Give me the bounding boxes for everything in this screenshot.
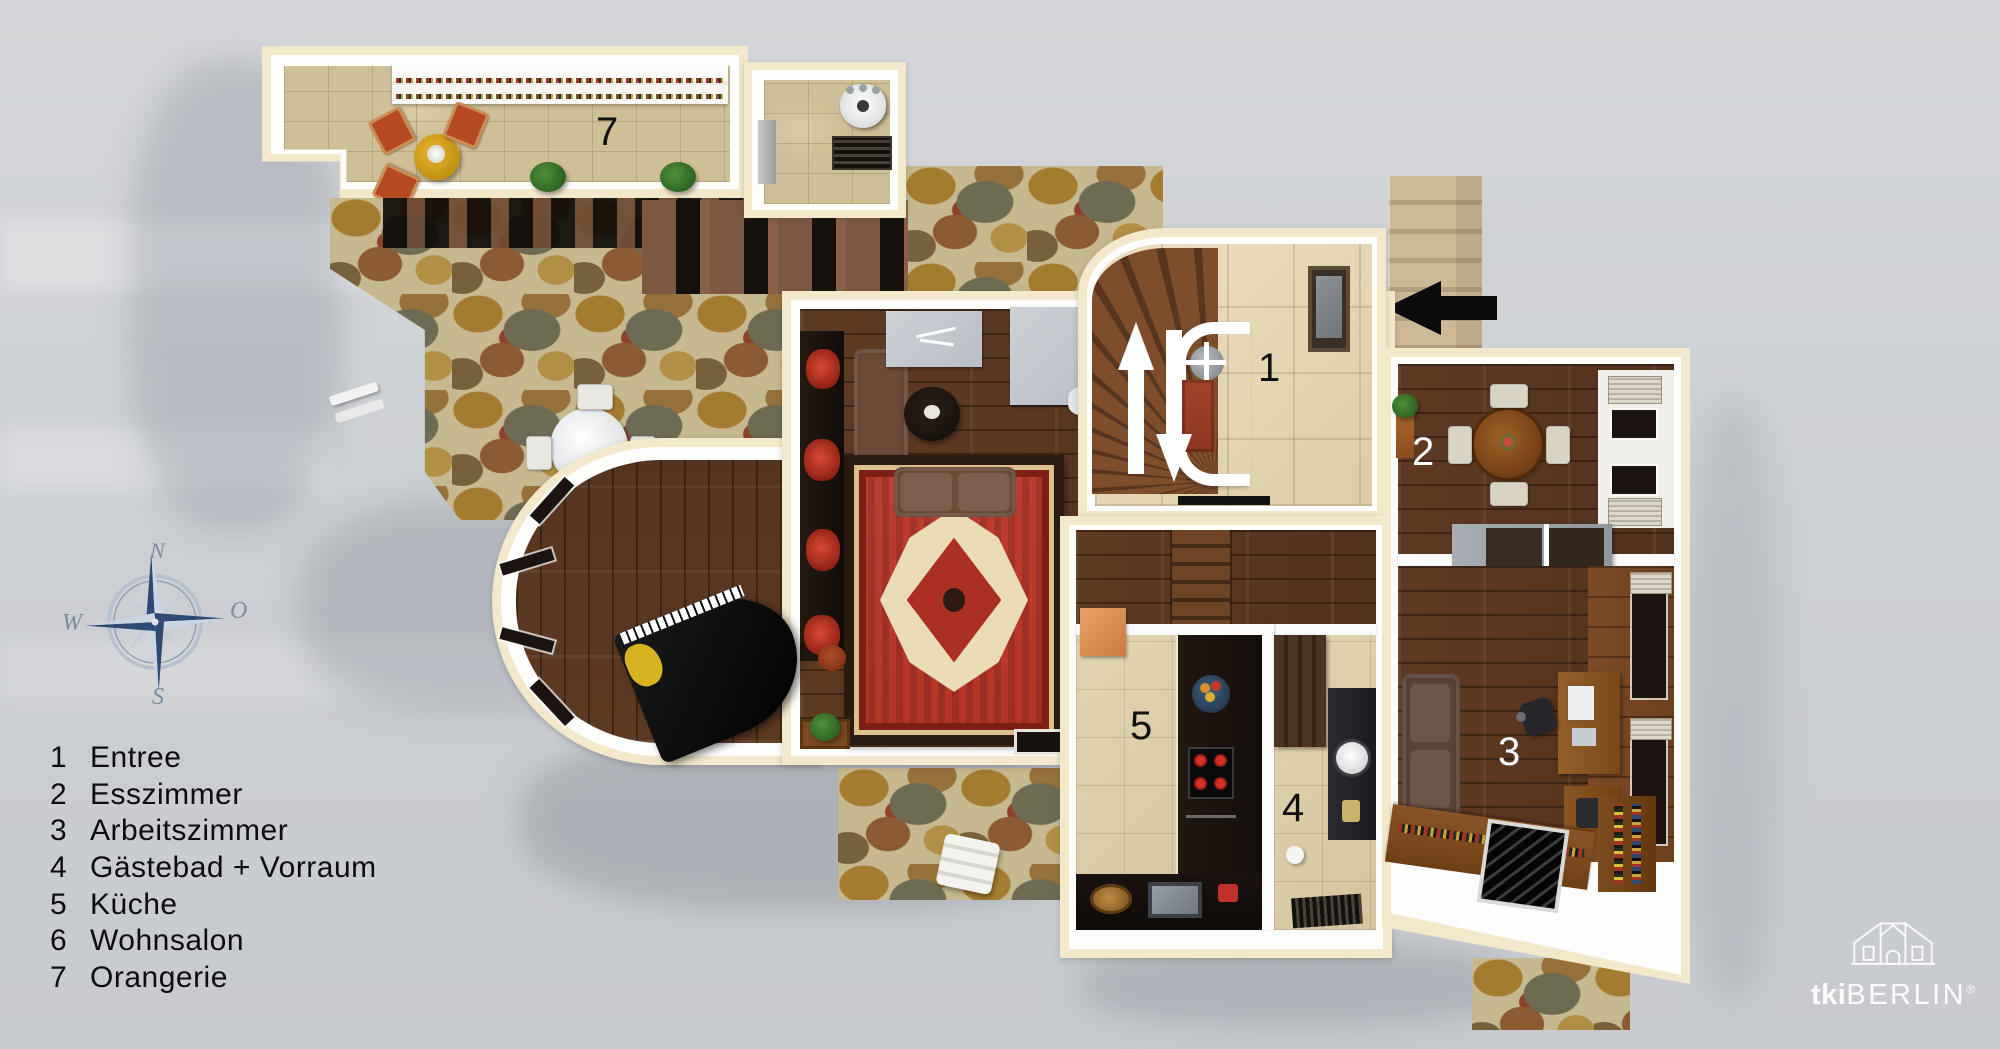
- desk: [1558, 672, 1620, 774]
- coffee-table: [904, 387, 960, 441]
- legend-label: Wohnsalon: [90, 924, 244, 958]
- legend-number: 6: [50, 924, 90, 958]
- registered-mark: ®: [1966, 982, 1975, 996]
- legend-number: 5: [50, 888, 90, 922]
- piano-stool: [818, 645, 846, 671]
- window-shutter: [1630, 718, 1672, 740]
- window-shutter: [1608, 498, 1662, 526]
- floor-grate: [834, 138, 890, 168]
- compass-west-label: W: [62, 610, 84, 636]
- legend-item: 4Gästebad + Vorraum: [50, 850, 377, 887]
- legend-item: 3Arbeitszimmer: [50, 813, 377, 850]
- brand-logo: tkiBERLIN®: [1778, 908, 2000, 1012]
- legend-item: 5Küche: [50, 886, 377, 923]
- legend-item: 6Wohnsalon: [50, 923, 377, 960]
- towel-hook: [1286, 846, 1304, 864]
- flagstone-patio-bottom-right: [1472, 958, 1630, 1030]
- room-label-kueche: 5: [1130, 704, 1153, 749]
- patio-chair: [526, 436, 552, 470]
- room-label-esszimmer: 2: [1412, 430, 1435, 475]
- room-label-arbeitszimmer: 3: [1498, 730, 1521, 775]
- dining-chair: [1448, 426, 1472, 464]
- legend-label: Gästebad + Vorraum: [90, 851, 377, 885]
- orangerie-shelf: [392, 62, 728, 104]
- threshold: [1178, 496, 1270, 505]
- basement-stairs: [1481, 823, 1565, 909]
- window-shutter: [1608, 376, 1662, 404]
- sideboard: [1452, 524, 1612, 570]
- legend-label: Entree: [90, 741, 181, 775]
- house-logo-icon: [1845, 908, 1941, 970]
- dining-table: [1474, 410, 1542, 478]
- brand-name-bold: tki: [1811, 979, 1846, 1011]
- shower-cabinet: [1274, 635, 1326, 747]
- washbasin: [840, 84, 886, 128]
- compass-north-label: N: [149, 540, 166, 563]
- legend-number: 2: [50, 778, 90, 812]
- room-label-entree: 1: [1258, 346, 1281, 391]
- legend-label: Orangerie: [90, 961, 228, 995]
- brand-name: tkiBERLIN®: [1778, 979, 2000, 1012]
- stair-newel: [1190, 346, 1224, 380]
- legend: 1Entree 2Esszimmer 3Arbeitszimmer 4Gäste…: [50, 740, 377, 996]
- legend-item: 1Entree: [50, 740, 377, 777]
- legend-item: 2Esszimmer: [50, 777, 377, 814]
- window: [1612, 410, 1656, 438]
- legend-number: 4: [50, 851, 90, 885]
- dining-chair: [1490, 482, 1528, 506]
- planter-box: [800, 719, 850, 749]
- corridor-steps: [1172, 530, 1230, 624]
- compass-rose: N O S W: [50, 540, 265, 710]
- cooktop: [1188, 747, 1234, 799]
- potted-plant: [530, 162, 566, 192]
- coat-closet: [1308, 266, 1350, 352]
- compass-east-label: O: [230, 598, 247, 624]
- bath-vanity: [1328, 688, 1376, 840]
- stairs-direction-arrows-icon: [1118, 322, 1192, 482]
- kitchen-cabinet-orange: [1080, 608, 1126, 656]
- round-sink: [1336, 742, 1368, 774]
- legend-number: 3: [50, 814, 90, 848]
- orangerie-table: [414, 134, 460, 180]
- window-shutter: [1630, 572, 1672, 594]
- legend-label: Küche: [90, 888, 178, 922]
- entrance-arrow-icon: [1385, 281, 1497, 335]
- cast-shadow: [1688, 400, 1778, 1000]
- potted-plant: [660, 162, 696, 192]
- patio-chair: [577, 384, 613, 410]
- legend-label: Arbeitszimmer: [90, 814, 288, 848]
- bath-mat: [1291, 894, 1363, 929]
- compass-south-label: S: [152, 684, 164, 710]
- bookshelf-flowers: [800, 331, 844, 661]
- legend-number: 7: [50, 961, 90, 995]
- orangerie-room: [262, 46, 748, 198]
- dining-chair: [1546, 426, 1570, 464]
- legend-label: Esszimmer: [90, 778, 243, 812]
- room-label-orangerie: 7: [596, 110, 619, 155]
- office-chair: [1516, 694, 1560, 740]
- floorplan-scene: 6 1: [0, 0, 2000, 1049]
- legend-number: 1: [50, 741, 90, 775]
- kitchen-counter-bottom: [1076, 874, 1262, 930]
- office-sofa: [1402, 674, 1460, 822]
- utility-room: [744, 62, 906, 218]
- fruit-bowl: [1192, 675, 1230, 713]
- kitchen-counter: [1178, 635, 1262, 887]
- dining-chair: [1490, 384, 1528, 408]
- console-table: [886, 311, 982, 367]
- legend-item: 7Orangerie: [50, 960, 377, 997]
- bookshelf-side: [1598, 796, 1656, 892]
- window: [1612, 466, 1656, 494]
- lounge-chair: [935, 833, 1001, 896]
- window: [1632, 594, 1666, 698]
- rug-sofa: [894, 467, 1016, 517]
- kitchen-bath-block: [1060, 516, 1392, 958]
- room-label-gaestebad: 4: [1282, 786, 1305, 831]
- brand-name-light: BERLIN: [1846, 979, 1966, 1011]
